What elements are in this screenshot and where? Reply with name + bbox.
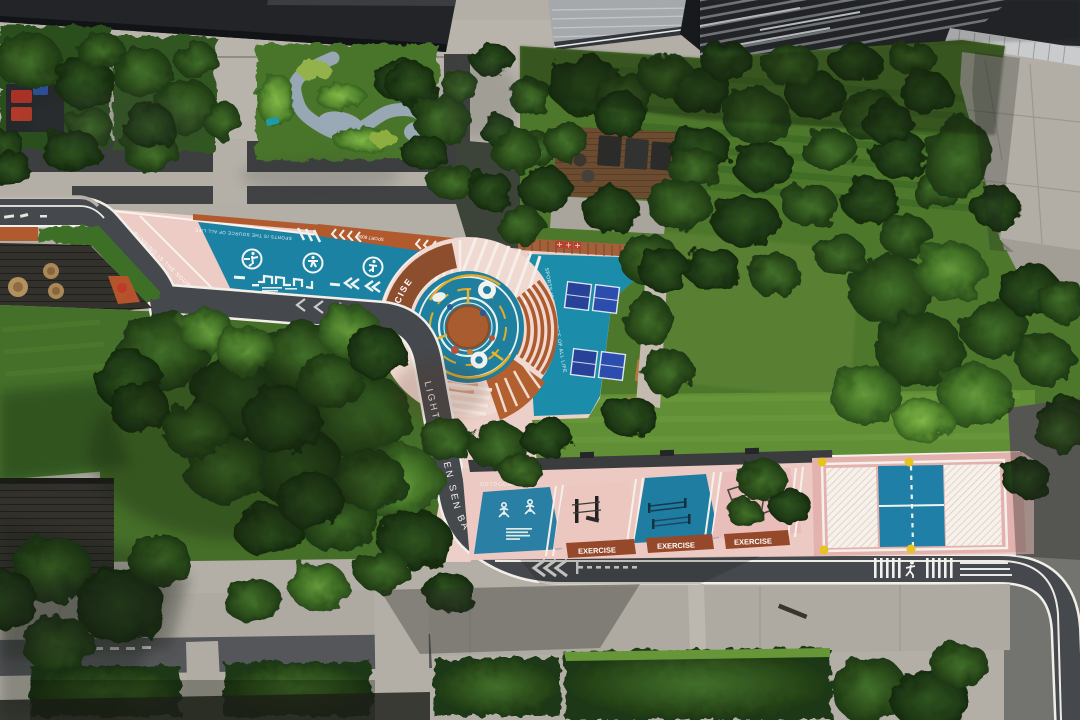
svg-text:EXERCISE: EXERCISE [734, 536, 772, 546]
svg-text:EXERCISE: EXERCISE [657, 540, 695, 550]
svg-text:EXERCISE: EXERCISE [578, 545, 616, 555]
